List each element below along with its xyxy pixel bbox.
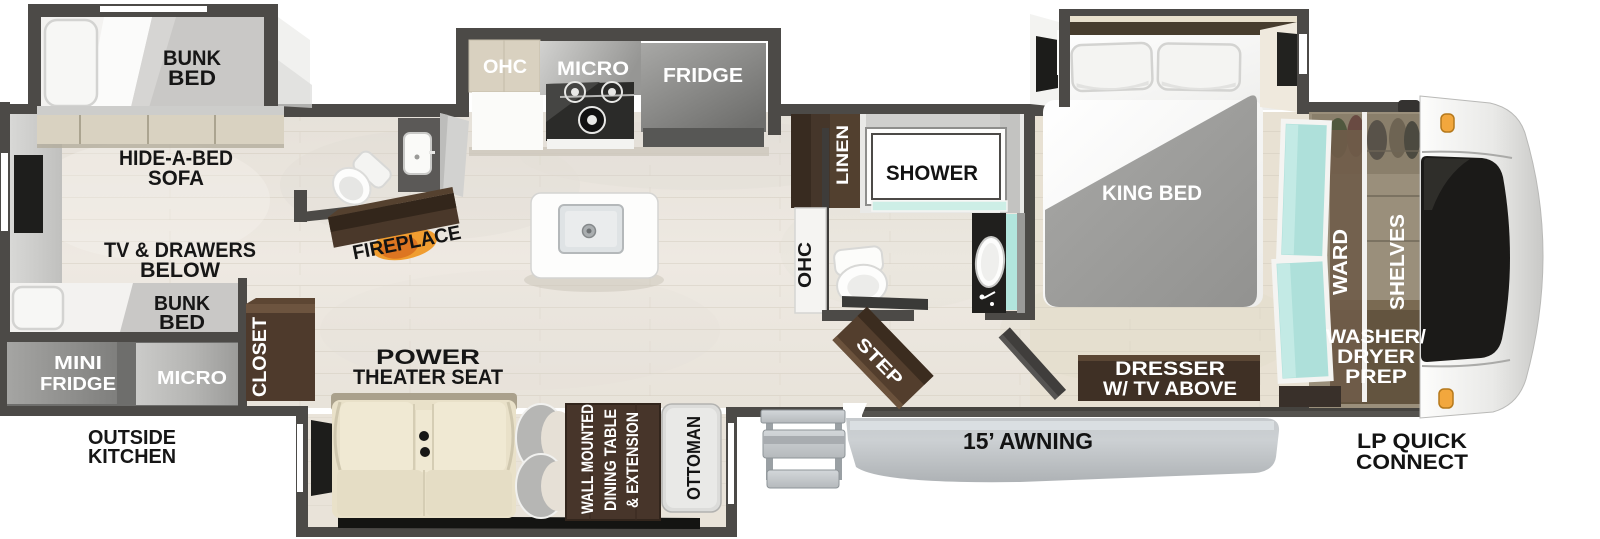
svg-text:DRYER: DRYER (1337, 347, 1415, 368)
svg-text:WASHER/: WASHER/ (1326, 327, 1427, 348)
svg-text:SHOWER: SHOWER (886, 162, 978, 185)
svg-text:PREP: PREP (1345, 367, 1407, 388)
svg-text:BED: BED (159, 312, 205, 334)
svg-text:& EXTENSION: & EXTENSION (624, 412, 642, 508)
svg-text:OTTOMAN: OTTOMAN (684, 416, 704, 500)
svg-text:CLOSET: CLOSET (250, 317, 271, 397)
svg-text:WALL MOUNTED: WALL MOUNTED (579, 404, 597, 514)
svg-text:MINI: MINI (54, 353, 102, 373)
svg-text:W/ TV ABOVE: W/ TV ABOVE (1103, 379, 1237, 400)
svg-text:LINEN: LINEN (833, 125, 852, 185)
svg-text:KITCHEN: KITCHEN (88, 446, 176, 468)
svg-text:LP QUICK: LP QUICK (1357, 430, 1467, 453)
svg-text:MICRO: MICRO (557, 59, 629, 80)
svg-text:THEATER SEAT: THEATER SEAT (353, 366, 503, 389)
svg-text:BELOW: BELOW (140, 259, 220, 282)
svg-text:BED: BED (168, 67, 216, 90)
svg-text:MICRO: MICRO (157, 368, 227, 388)
svg-text:WARD: WARD (1330, 229, 1352, 295)
svg-text:CONNECT: CONNECT (1356, 451, 1468, 474)
svg-text:DRESSER: DRESSER (1115, 359, 1225, 380)
svg-text:KING BED: KING BED (1102, 182, 1202, 205)
svg-text:15’ AWNING: 15’ AWNING (963, 428, 1093, 454)
svg-text:OHC: OHC (795, 242, 815, 288)
svg-text:SOFA: SOFA (148, 167, 204, 190)
svg-text:FRIDGE: FRIDGE (40, 374, 116, 394)
svg-text:FRIDGE: FRIDGE (663, 65, 743, 87)
svg-text:DINING TABLE: DINING TABLE (602, 409, 620, 511)
svg-text:OHC: OHC (483, 57, 527, 78)
svg-text:SHELVES: SHELVES (1387, 214, 1409, 310)
